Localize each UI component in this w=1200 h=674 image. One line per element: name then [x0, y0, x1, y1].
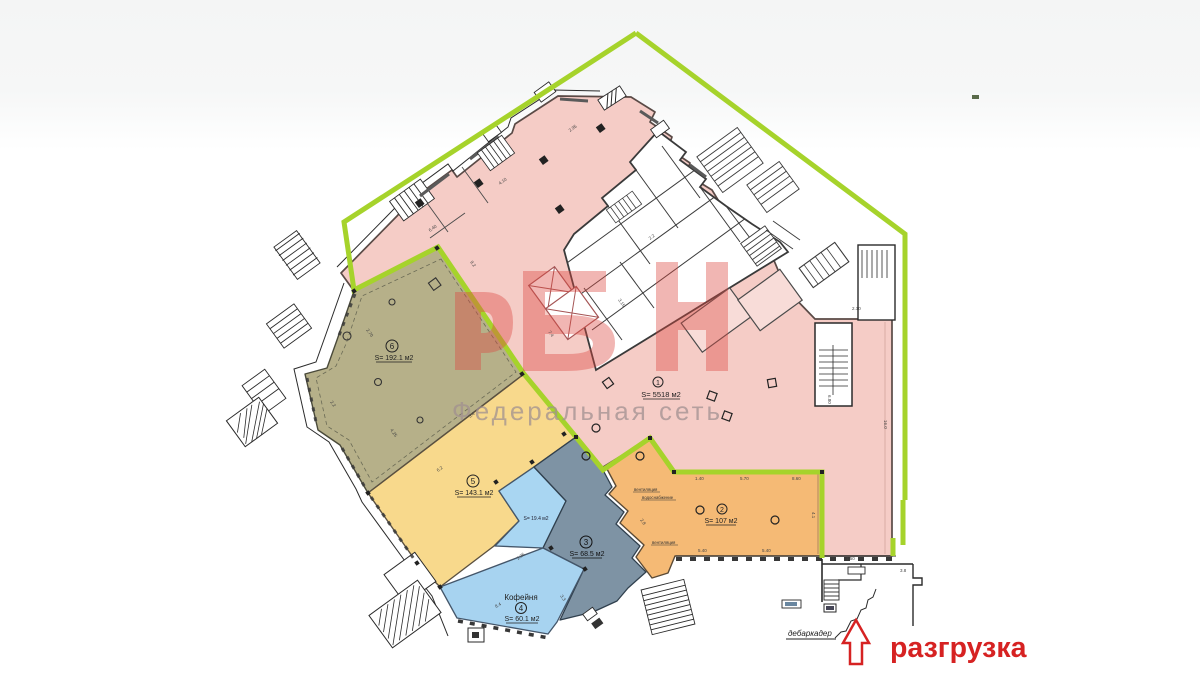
- svg-text:5.40: 5.40: [762, 548, 771, 553]
- svg-text:Кофейня: Кофейня: [504, 593, 537, 602]
- svg-text:4: 4: [519, 604, 524, 613]
- svg-text:S= 192.1 м2: S= 192.1 м2: [375, 355, 414, 362]
- svg-text:2: 2: [720, 507, 724, 514]
- svg-text:S= 143.1 м2: S= 143.1 м2: [455, 490, 494, 497]
- svg-text:8.60: 8.60: [792, 476, 801, 481]
- svg-text:5.40: 5.40: [698, 548, 707, 553]
- svg-text:Федеральная сеть: Федеральная сеть: [452, 396, 723, 426]
- svg-text:3: 3: [584, 538, 589, 547]
- svg-text:6.80: 6.80: [827, 395, 832, 404]
- svg-text:вентиляция: вентиляция: [634, 487, 658, 492]
- svg-text:3.8: 3.8: [900, 568, 907, 573]
- svg-text:разгрузка: разгрузка: [890, 632, 1028, 664]
- svg-text:S= 19.4 м2: S= 19.4 м2: [524, 516, 549, 522]
- svg-text:5.70: 5.70: [740, 476, 749, 481]
- svg-text:1: 1: [656, 380, 660, 387]
- svg-text:S= 107 м2: S= 107 м2: [704, 518, 737, 525]
- svg-text:16.0: 16.0: [883, 420, 888, 429]
- svg-text:S= 5518 м2: S= 5518 м2: [641, 390, 681, 399]
- svg-text:S= 60.1 м2: S= 60.1 м2: [505, 616, 540, 623]
- svg-text:дебаркадер: дебаркадер: [788, 629, 832, 638]
- svg-text:2.10: 2.10: [852, 306, 861, 311]
- svg-text:S= 68.5 м2: S= 68.5 м2: [570, 551, 605, 558]
- svg-text:водоснабжение: водоснабжение: [642, 495, 674, 500]
- svg-text:6: 6: [390, 342, 395, 351]
- svg-text:1.40: 1.40: [695, 476, 704, 481]
- svg-text:1.50: 1.50: [846, 556, 855, 561]
- svg-text:вентиляция: вентиляция: [652, 540, 676, 545]
- svg-text:4.1: 4.1: [811, 512, 816, 519]
- svg-text:5: 5: [471, 477, 476, 486]
